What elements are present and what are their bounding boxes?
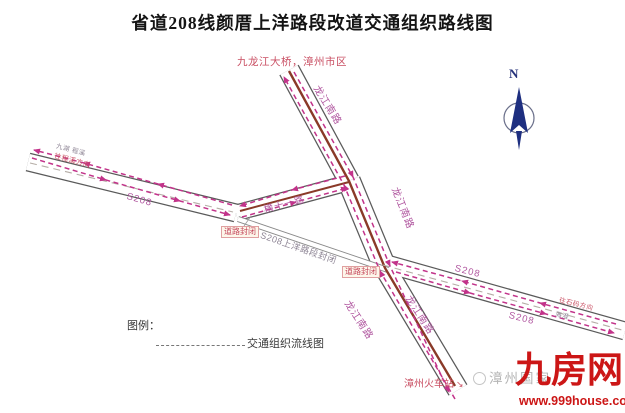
road-closed-badge-west: 道路封闭 <box>221 226 259 238</box>
watermark-logo-icon <box>473 372 486 385</box>
north-destination-label: 九龙江大桥，漳州市区 <box>237 57 347 69</box>
traffic-map-page: 省道208线颜厝上洋路段改道交通组织路线图 <box>0 0 625 413</box>
road-casings <box>28 70 625 390</box>
watermark-url: www.999house.com <box>519 394 625 408</box>
station-arrow-icon: ↘ <box>456 379 464 389</box>
road-closed-badge-center: 道路封闭 <box>342 266 380 278</box>
compass-n-label: N <box>509 66 518 82</box>
watermark-brand: 九房网 <box>515 352 623 388</box>
station-label: 漳州火车站↘ <box>404 379 464 390</box>
compass-icon <box>504 87 534 150</box>
station-label-text: 漳州火车站 <box>404 379 454 390</box>
legend-title: 图例： <box>127 320 160 332</box>
legend-flow-label: 交通组织流线图 <box>247 338 324 350</box>
legend-flow-line-sample <box>156 345 245 346</box>
